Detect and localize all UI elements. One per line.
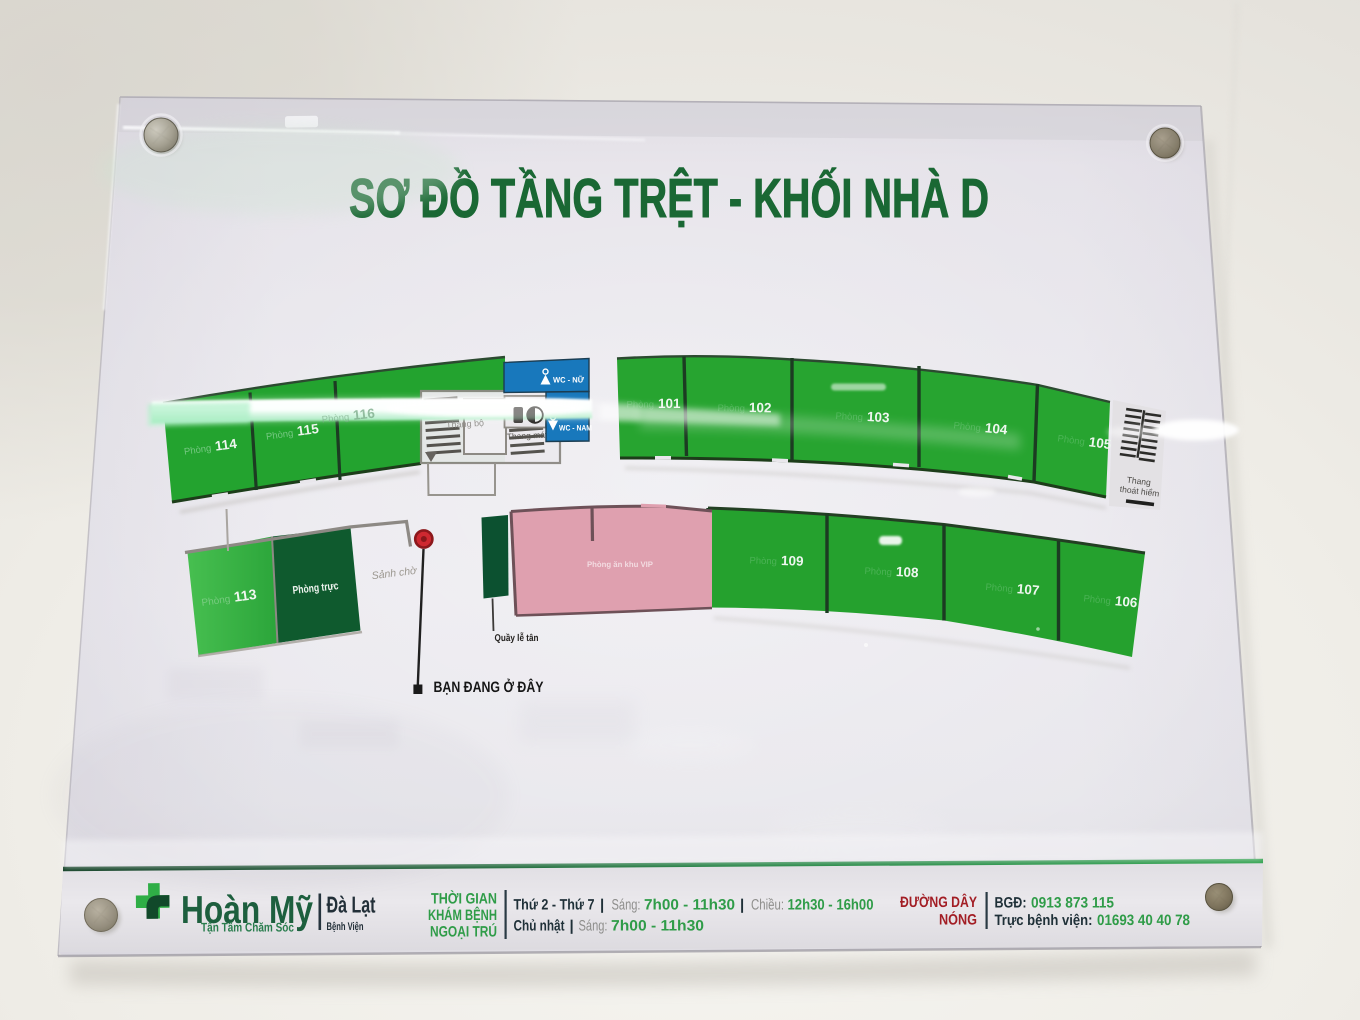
svg-text:105: 105 (1088, 434, 1113, 452)
svg-text:Quầy lễ tân: Quầy lễ tân (495, 632, 539, 644)
svg-text:115: 115 (296, 421, 320, 439)
svg-text:7h00 - 11h30: 7h00 - 11h30 (611, 918, 704, 935)
svg-text:109: 109 (781, 553, 804, 569)
svg-text:|: | (570, 918, 574, 935)
svg-text:THỜI GIAN: THỜI GIAN (431, 890, 497, 908)
svg-text:WC - NAM: WC - NAM (559, 424, 592, 433)
svg-text:Thứ 2 - Thứ 7: Thứ 2 - Thứ 7 (514, 897, 595, 914)
svg-text:WC - NỮ: WC - NỮ (553, 376, 585, 385)
svg-text:0913 873 115: 0913 873 115 (1031, 895, 1114, 912)
svg-text:Tận Tâm Chăm Sóc: Tận Tâm Chăm Sóc (201, 921, 294, 935)
svg-text:|: | (600, 897, 604, 914)
svg-text:114: 114 (214, 436, 238, 454)
svg-text:BGĐ:: BGĐ: (995, 895, 1027, 912)
svg-text:116: 116 (352, 406, 376, 423)
svg-text:Chiều:: Chiều: (751, 897, 784, 914)
svg-text:Phòng: Phòng (749, 555, 777, 567)
svg-text:Phòng ăn khu VIP: Phòng ăn khu VIP (587, 560, 654, 569)
svg-text:113: 113 (233, 586, 258, 605)
svg-text:NÓNG: NÓNG (939, 911, 977, 929)
svg-text:BẠN ĐANG Ở ĐÂY: BẠN ĐANG Ở ĐÂY (434, 678, 544, 696)
svg-text:107: 107 (1016, 581, 1040, 598)
svg-text:12h30 - 16h00: 12h30 - 16h00 (788, 897, 874, 914)
svg-text:01693 40 40 78: 01693 40 40 78 (1097, 912, 1190, 929)
svg-text:108: 108 (896, 564, 920, 580)
svg-text:7h00 - 11h30: 7h00 - 11h30 (644, 897, 735, 914)
svg-text:Sáng:: Sáng: (579, 918, 608, 935)
svg-text:Phòng: Phòng (864, 566, 892, 578)
svg-text:106: 106 (1114, 593, 1138, 610)
svg-text:Chủ nhật: Chủ nhật (514, 918, 565, 935)
svg-text:Sáng:: Sáng: (612, 897, 641, 914)
svg-text:NGOẠI TRÚ: NGOẠI TRÚ (430, 923, 497, 941)
svg-text:Bệnh Viện: Bệnh Viện (327, 921, 364, 933)
svg-text:Trực bệnh viện:: Trực bệnh viện: (995, 912, 1093, 929)
svg-text:ĐƯỜNG DÂY: ĐƯỜNG DÂY (900, 893, 977, 911)
svg-text:|: | (740, 897, 744, 914)
svg-text:KHÁM BỆNH: KHÁM BỆNH (428, 906, 497, 924)
svg-text:Đà Lạt: Đà Lạt (327, 892, 376, 918)
